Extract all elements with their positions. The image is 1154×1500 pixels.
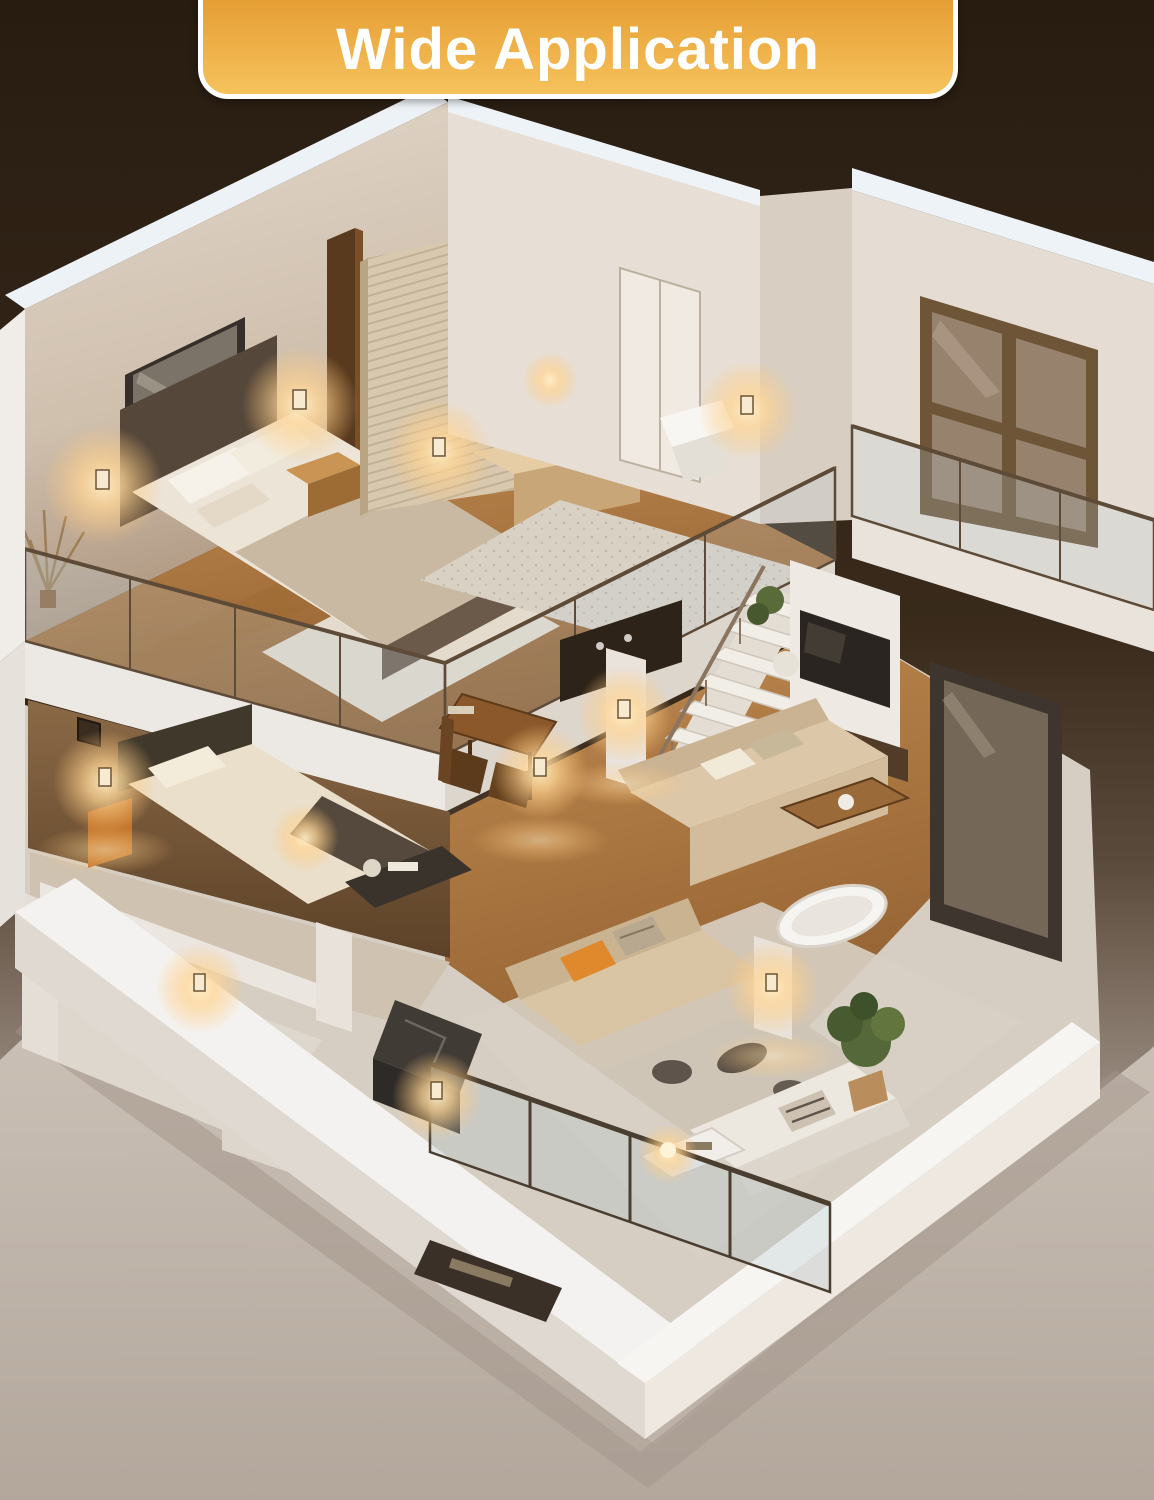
divider-wall [316, 922, 352, 1032]
rug-motif [652, 1060, 692, 1084]
left-wall [0, 309, 25, 927]
textured-wall-edge [360, 258, 368, 516]
plant-foliage [850, 992, 878, 1020]
flower-bouquet [773, 651, 799, 677]
bowl [838, 794, 854, 810]
table-setting [448, 706, 474, 714]
wall-end-cap [0, 309, 25, 662]
corner-wall [760, 188, 852, 524]
wall-face [0, 641, 25, 927]
apartment-cutaway-render [0, 0, 1154, 1500]
vase-flowers [363, 859, 381, 877]
stove-knob [596, 642, 604, 650]
stove-knob [624, 634, 632, 642]
plant-on-console [747, 603, 769, 625]
books [388, 862, 418, 871]
banner-label: Wide Application [336, 6, 820, 83]
banner: Wide Application [198, 0, 958, 99]
product-image: Wide Application [0, 0, 1154, 1500]
